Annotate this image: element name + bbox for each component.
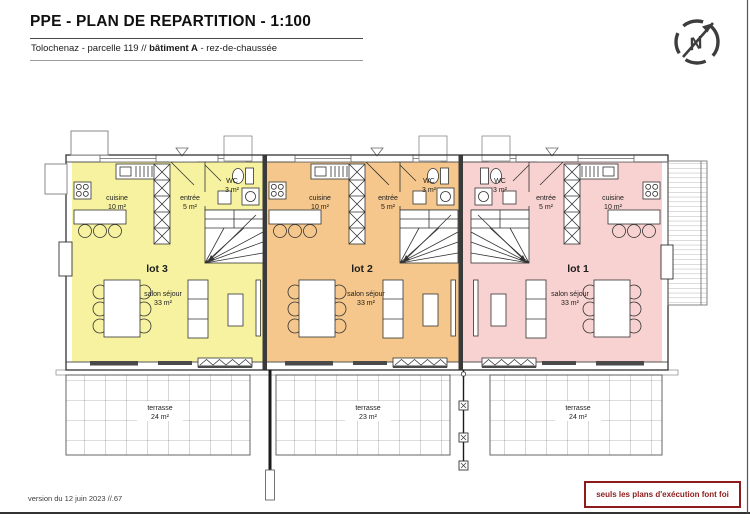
lot2-entree-label: entrée	[378, 195, 398, 202]
lot2-cuisine-area: 10 m²	[311, 204, 330, 211]
lot3-salon-area: 33 m²	[154, 300, 173, 307]
lot2-cuisine-label: cuisine	[309, 195, 331, 202]
lot3-label: lot 3	[146, 263, 168, 275]
floor-plan: cuisine 10 m² entrée 5 m² WC 3 m² lot 3 …	[0, 0, 750, 529]
lot3-salon-label: salon séjour	[144, 291, 182, 298]
lot3-entree-label: entrée	[180, 195, 200, 202]
lot3-wc-area: 3 m²	[225, 187, 240, 194]
left-porch	[45, 164, 67, 194]
lot2-salon-label: salon séjour	[347, 291, 385, 298]
lot3-wc-label: WC	[226, 178, 238, 185]
exterior-stair	[661, 161, 707, 305]
lot3-porch	[71, 131, 108, 155]
lot1-wc-area: 3 m²	[493, 187, 508, 194]
terrace3-area: 24 m²	[151, 414, 170, 421]
lot1-salon-area: 33 m²	[561, 300, 580, 307]
lot2-entree-area: 5 m²	[381, 204, 396, 211]
lot3-entree-area: 5 m²	[183, 204, 198, 211]
terrace1-label: terrasse	[565, 405, 590, 412]
lot1-entree-label: entrée	[536, 195, 556, 202]
disclaimer-text: seuls les plans d'exécution font foi	[596, 490, 729, 499]
lot2-salon-area: 33 m²	[357, 300, 376, 307]
terrace1-area: 24 m²	[569, 414, 588, 421]
lot2-wc-label: WC	[423, 178, 435, 185]
lot2-wc-area: 3 m²	[422, 187, 437, 194]
lot3-cuisine-label: cuisine	[106, 195, 128, 202]
title-divider	[30, 38, 363, 39]
right-window	[661, 245, 673, 279]
subtitle-suffix: - rez-de-chaussée	[198, 43, 277, 54]
subtitle-divider	[30, 60, 363, 61]
terrace2-label: terrasse	[355, 405, 380, 412]
terrace-divider-fence	[459, 370, 468, 470]
terrace2-area: 23 m²	[359, 414, 378, 421]
lot3-cuisine-area: 10 m²	[108, 204, 127, 211]
left-window	[59, 242, 72, 276]
lot1-label: lot 1	[567, 263, 589, 275]
party-wall	[459, 155, 464, 370]
subtitle: Tolochenaz - parcelle 119 // bâtiment A …	[31, 43, 277, 54]
subtitle-building: bâtiment A	[149, 43, 198, 54]
lot1-salon-label: salon séjour	[551, 291, 589, 298]
lot1-cuisine-area: 10 m²	[604, 204, 623, 211]
lot1-entree-area: 5 m²	[539, 204, 554, 211]
lot2-label: lot 2	[351, 263, 373, 275]
plan-sheet: cuisine 10 m² entrée 5 m² WC 3 m² lot 3 …	[0, 0, 750, 529]
version-text: version du 12 juin 2023 //.67	[28, 494, 122, 503]
terrace3-label: terrasse	[147, 405, 172, 412]
page-title: PPE - PLAN DE REPARTITION - 1:100	[30, 13, 311, 31]
north-arrow-icon: N	[676, 21, 718, 63]
disclaimer-box: seuls les plans d'exécution font foi	[584, 481, 741, 508]
lot1-cuisine-label: cuisine	[602, 195, 624, 202]
terrace-ledge	[56, 370, 678, 375]
terrace-divider-wall	[266, 370, 275, 500]
lot1-wc-label: WC	[494, 178, 506, 185]
subtitle-prefix: Tolochenaz - parcelle 119 //	[31, 43, 149, 54]
